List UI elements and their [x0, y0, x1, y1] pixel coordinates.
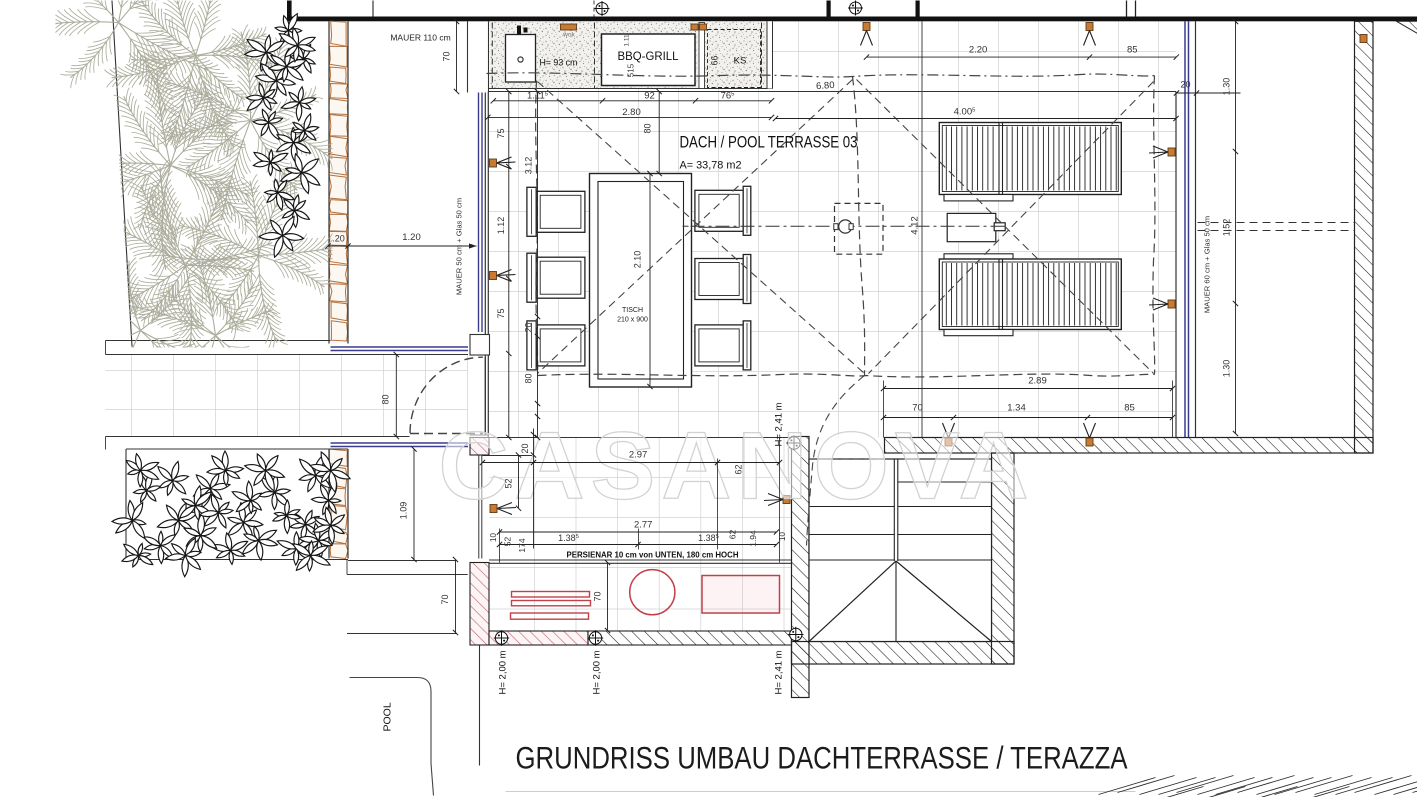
svg-text:1.09: 1.09 — [399, 502, 409, 520]
svg-text:2.20: 2.20 — [969, 45, 988, 56]
svg-text:2.80: 2.80 — [622, 107, 641, 118]
svg-text:H= 2,41 m: H= 2,41 m — [774, 402, 785, 446]
svg-text:BBQ-GRILL: BBQ-GRILL — [618, 49, 679, 63]
svg-text:70: 70 — [912, 403, 923, 414]
svg-text:1.12: 1.12 — [496, 217, 506, 235]
svg-text:1.52: 1.52 — [1222, 219, 1232, 237]
svg-text:80: 80 — [381, 394, 391, 404]
svg-text:POOL: POOL — [382, 702, 394, 731]
svg-text:20: 20 — [520, 443, 530, 453]
svg-text:62: 62 — [734, 464, 744, 474]
svg-text:KS: KS — [734, 56, 747, 67]
svg-text:1.30: 1.30 — [1222, 360, 1232, 378]
svg-text:MAUER 50 cm + Glas 50 cm: MAUER 50 cm + Glas 50 cm — [455, 198, 464, 295]
svg-text:DACH / POOL TERRASSE 03: DACH / POOL TERRASSE 03 — [680, 134, 858, 152]
svg-text:66: 66 — [710, 55, 720, 65]
svg-text:52: 52 — [503, 537, 513, 547]
svg-text:GRUNDRISS UMBAU DACHTERRASSE /: GRUNDRISS UMBAU DACHTERRASSE / TERAZZA — [516, 740, 1128, 776]
svg-text:80: 80 — [524, 373, 534, 383]
svg-text:H= 93 cm: H= 93 cm — [540, 58, 578, 68]
svg-text:1.94: 1.94 — [748, 530, 758, 547]
svg-text:80: 80 — [643, 123, 653, 133]
svg-text:210 x 900: 210 x 900 — [617, 317, 648, 324]
svg-text:20: 20 — [1180, 80, 1190, 90]
svg-text:70: 70 — [442, 51, 452, 61]
svg-text:TISCH: TISCH — [622, 307, 643, 314]
svg-text:2.10: 2.10 — [633, 251, 643, 269]
svg-text:70: 70 — [440, 594, 450, 604]
svg-text:70: 70 — [593, 591, 603, 601]
svg-text:92: 92 — [644, 91, 655, 102]
svg-text:2.77: 2.77 — [634, 520, 653, 531]
svg-text:62: 62 — [728, 530, 738, 540]
svg-text:10: 10 — [489, 533, 498, 542]
svg-text:1.30: 1.30 — [1222, 78, 1232, 96]
svg-text:2.97: 2.97 — [629, 450, 648, 461]
svg-text:1.11: 1.11 — [624, 34, 631, 47]
svg-text:6.80: 6.80 — [816, 80, 835, 92]
svg-text:4.12: 4.12 — [910, 216, 921, 235]
svg-text:H= 2,41 m: H= 2,41 m — [774, 650, 785, 694]
svg-text:.20: .20 — [332, 234, 345, 244]
svg-text:1.34: 1.34 — [1007, 403, 1026, 414]
svg-text:H= 2,00 m: H= 2,00 m — [498, 650, 509, 694]
svg-text:85: 85 — [1127, 45, 1138, 56]
svg-text:MAUER 110 cm: MAUER 110 cm — [390, 33, 450, 43]
svg-text:MAUER 60 cm + Glas 50 cm: MAUER 60 cm + Glas 50 cm — [1203, 216, 1212, 313]
svg-text:75: 75 — [496, 308, 506, 318]
svg-text:85: 85 — [1124, 403, 1135, 414]
svg-text:3.12: 3.12 — [524, 157, 534, 175]
svg-text:2.89: 2.89 — [1028, 376, 1047, 387]
svg-text:20: 20 — [524, 322, 534, 332]
svg-text:PERSIENAR 10 cm von UNTEN, 180: PERSIENAR 10 cm von UNTEN, 180 cm HOCH — [567, 550, 739, 560]
svg-text:H= 2,00 m: H= 2,00 m — [592, 650, 603, 694]
svg-text:515: 515 — [627, 63, 636, 77]
svg-text:174: 174 — [517, 538, 527, 552]
svg-text:52: 52 — [504, 478, 514, 488]
svg-text:75: 75 — [496, 128, 506, 138]
svg-text:wok: wok — [562, 32, 575, 39]
svg-text:A= 33,78 m2: A= 33,78 m2 — [680, 160, 742, 172]
svg-text:1.20: 1.20 — [402, 232, 421, 243]
